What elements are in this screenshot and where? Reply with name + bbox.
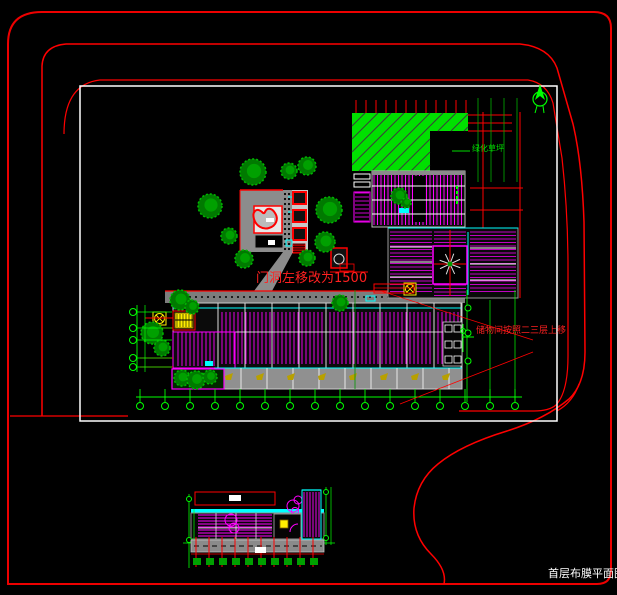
upper-building: [354, 171, 465, 227]
cad-viewport: 门洞左移改为1500 储物间按照二三层上移 绿化草坪 首层布膜平面图: [0, 0, 617, 595]
tree-icon: [198, 194, 222, 218]
tree-icon: [154, 340, 170, 356]
tree-icon: [235, 250, 253, 268]
tree-icon: [185, 300, 199, 314]
lawn: [352, 100, 512, 171]
tree-icon: [240, 159, 266, 185]
tree-icon: [315, 232, 335, 252]
tree-icon: [401, 198, 411, 208]
tree-icon: [298, 157, 316, 175]
green-grid-topright: [478, 98, 517, 182]
mid-building: [388, 228, 518, 298]
tree-icon: [203, 370, 217, 384]
planter: [172, 369, 224, 389]
site-plan-drawing: [0, 0, 617, 595]
terrace: [215, 368, 462, 389]
tree-icon: [221, 228, 237, 244]
tree-icon: [332, 295, 348, 311]
section-drawing: [183, 487, 335, 568]
tree-icon: [316, 197, 342, 223]
tree-icon: [281, 163, 297, 179]
tree-icon: [187, 371, 205, 389]
tree-icon: [299, 250, 315, 266]
